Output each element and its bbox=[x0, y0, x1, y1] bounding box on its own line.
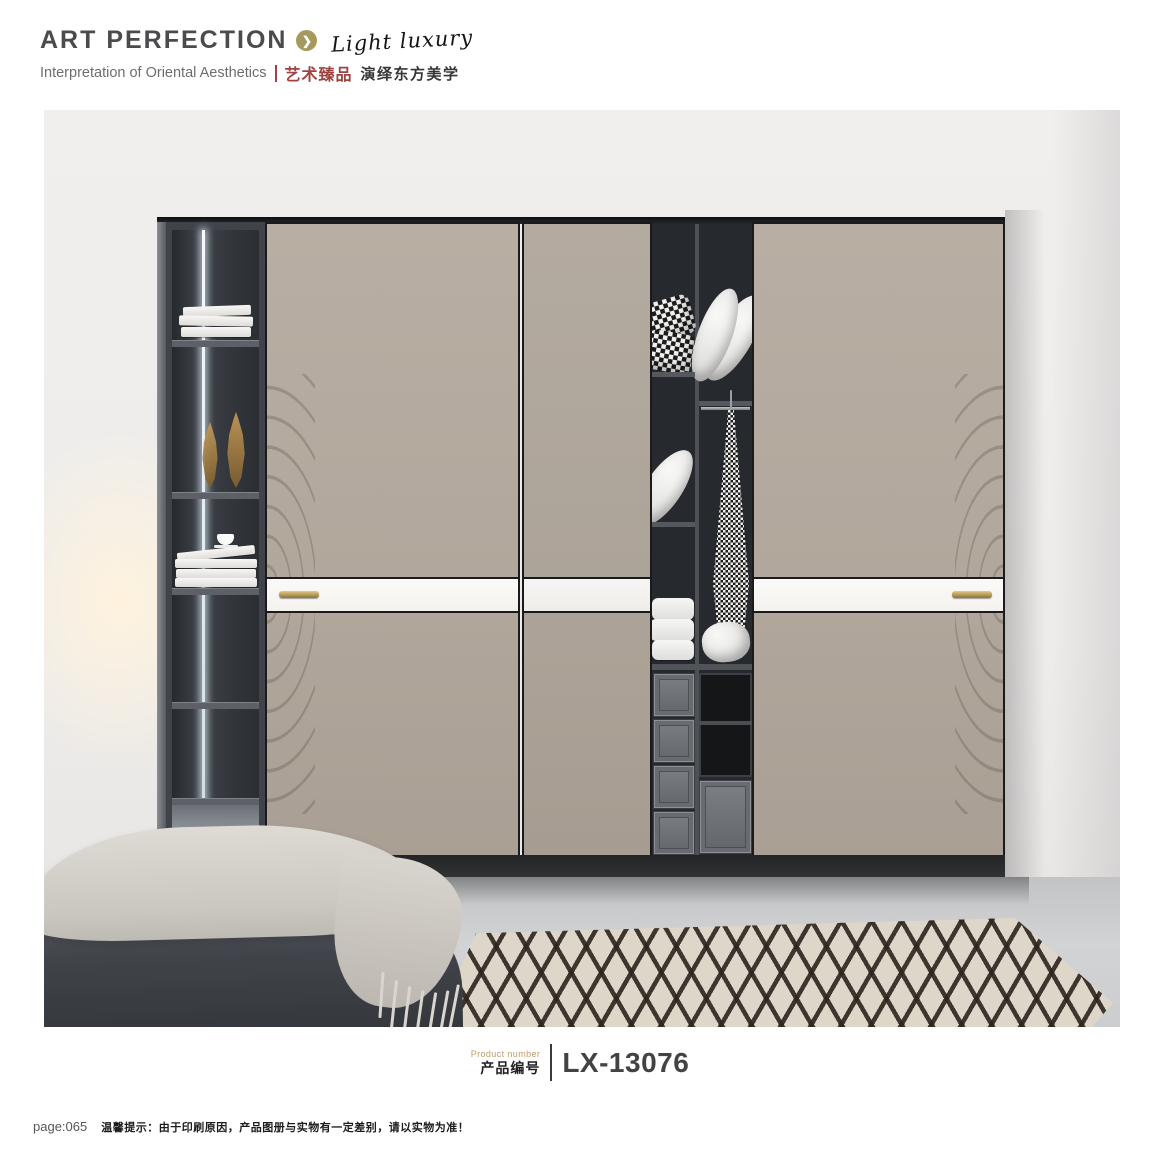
wardrobe bbox=[157, 217, 1005, 877]
decor-books bbox=[175, 578, 257, 587]
tagline-english: Interpretation of Oriental Aesthetics bbox=[40, 65, 267, 81]
cabinet-shelf bbox=[699, 721, 752, 725]
drawer bbox=[653, 673, 695, 717]
folded-duvet bbox=[652, 640, 694, 660]
section-shelf bbox=[652, 372, 695, 377]
open-shelf-column bbox=[157, 217, 265, 877]
brand-name: ART PERFECTION bbox=[40, 26, 287, 55]
brand-tagline-row: Interpretation of Oriental Aesthetics 艺术… bbox=[40, 61, 474, 85]
decor-books bbox=[175, 559, 257, 568]
sliding-door-middle bbox=[522, 222, 652, 860]
brand-header: ART PERFECTION ❯ Light luxury Interpreta… bbox=[40, 26, 474, 85]
section-shelf bbox=[699, 401, 752, 406]
print-disclaimer: 温馨提示：由于印刷原因，产品图册与实物有一定差别，请以实物为准！ bbox=[101, 1119, 469, 1135]
brand-script-text: Light luxury bbox=[331, 25, 474, 56]
shelf-divider bbox=[172, 588, 259, 595]
product-number-divider bbox=[550, 1044, 552, 1081]
drawer bbox=[653, 765, 695, 809]
hanger-hook bbox=[730, 390, 732, 412]
section-shelf bbox=[652, 522, 695, 527]
door-handle-gold bbox=[952, 591, 992, 598]
wardrobe-wall-shadow bbox=[1005, 210, 1045, 877]
folded-duvet bbox=[652, 598, 694, 620]
product-number-label-en: Product number bbox=[471, 1049, 541, 1059]
product-number-labels: Product number 产品编号 bbox=[471, 1049, 541, 1075]
shelf-side-panel bbox=[157, 222, 166, 873]
shelf-divider bbox=[172, 340, 259, 347]
white-pillow bbox=[700, 620, 752, 665]
decor-books bbox=[179, 315, 253, 326]
hanging-rod bbox=[701, 407, 750, 410]
drawer bbox=[699, 780, 752, 854]
sliding-door-right bbox=[752, 222, 1005, 860]
tagline-chinese: 演绎东方美学 bbox=[361, 63, 460, 84]
product-number-block: Product number 产品编号 LX-13076 bbox=[0, 1044, 1160, 1081]
brand-arrow-icon: ❯ bbox=[296, 30, 317, 51]
series-name-chinese: 艺术臻品 bbox=[285, 61, 353, 85]
product-code: LX-13076 bbox=[562, 1047, 689, 1079]
door-handle-gold bbox=[279, 591, 319, 598]
bed bbox=[44, 822, 474, 1027]
product-number-label-cn: 产品编号 bbox=[471, 1060, 541, 1076]
shelf-divider bbox=[172, 702, 259, 709]
folded-duvet bbox=[652, 619, 694, 641]
shelf-divider bbox=[172, 492, 259, 499]
tagline-divider bbox=[275, 65, 277, 82]
open-cabinet-box bbox=[699, 673, 752, 777]
diamond-pattern-rug bbox=[420, 918, 1120, 1027]
section-shelf bbox=[652, 664, 752, 670]
product-photo bbox=[44, 110, 1120, 1027]
brand-logo-row: ART PERFECTION ❯ Light luxury bbox=[40, 26, 474, 55]
open-wardrobe-section bbox=[652, 224, 752, 855]
shelf-divider bbox=[172, 798, 259, 805]
drawer bbox=[653, 811, 695, 855]
wall-corner-shade bbox=[1052, 110, 1120, 877]
sliding-door-left bbox=[265, 222, 520, 860]
catalog-page: ART PERFECTION ❯ Light luxury Interpreta… bbox=[0, 0, 1160, 1160]
page-number: page:065 bbox=[33, 1119, 87, 1134]
drawer bbox=[653, 719, 695, 763]
decor-books bbox=[181, 327, 251, 337]
checkered-pillow bbox=[652, 328, 696, 375]
page-footer: page:065 温馨提示：由于印刷原因，产品图册与实物有一定差别，请以实物为准… bbox=[33, 1119, 469, 1135]
door-handle-strip bbox=[524, 577, 650, 613]
decor-books bbox=[176, 569, 256, 578]
